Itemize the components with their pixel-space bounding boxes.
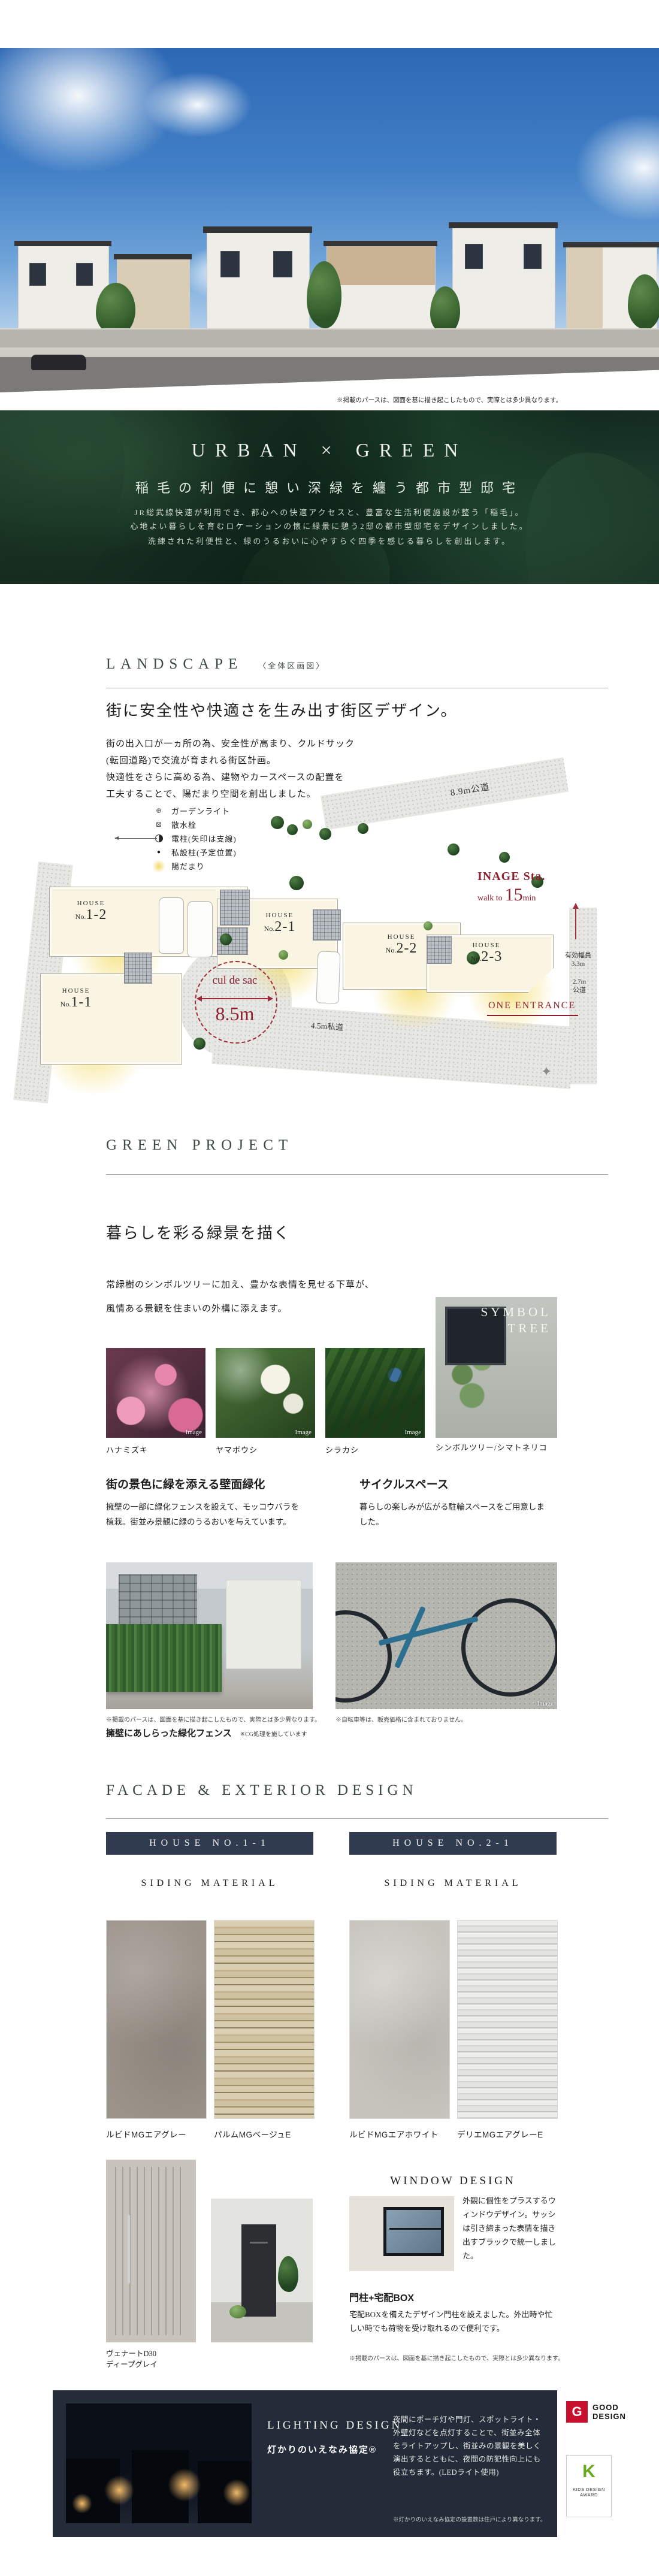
tree-icon [287, 824, 298, 835]
house-render [18, 246, 109, 334]
lighting-note: ※灯かりのいえなみ協定の設置数は住戸により異なります。 [393, 2515, 546, 2523]
car-outline [188, 901, 213, 957]
swatch-caption: パルムMGベージュE [214, 2128, 291, 2140]
urban-green-body-line: 洗練された利便性と、緑のうるおいに心やすらぐ四季を感じる暮らしを創出します。 [0, 535, 659, 546]
gate-post-photo [211, 2199, 313, 2342]
entrance-label: ONE ENTRANCE [488, 1000, 576, 1011]
wall-green-caption-note: ※CG処理を施しています [240, 1731, 307, 1738]
private-road-label: 4.5m私道 [310, 1018, 344, 1033]
house-render [452, 228, 555, 334]
cloud [575, 114, 659, 222]
urban-green-body-line: 心地よい暮らしを育むロケーションの懐に緑景に憩う2邸の都市型邸宅をデザインしまし… [0, 520, 659, 531]
landscape-header: LANDSCAPE 〈全体区画図〉 [106, 656, 325, 673]
urban-green-title: URBAN × GREEN [0, 439, 659, 461]
good-design-mark-icon: G [566, 2401, 588, 2423]
house-label-2-3: HOUSE No.2-3 [454, 942, 519, 965]
window-bar [389, 2228, 444, 2230]
landscape-title-note: 〈全体区画図〉 [258, 660, 325, 671]
roof-hatch [124, 953, 152, 984]
bicycle-wheel [461, 1598, 557, 1697]
image-tag: Image [295, 1429, 312, 1436]
culdesac-label: cul de sac [195, 974, 275, 987]
culdesac-width: 8.5m [195, 1003, 275, 1025]
bush-icon [303, 820, 312, 829]
road-width-note-2: 2.7m 公道 [561, 978, 597, 994]
window-photo [349, 2196, 454, 2271]
image-tag: Image [186, 1429, 202, 1436]
tree [628, 274, 659, 329]
culdesac-width-arrow [197, 998, 273, 999]
landscape-title: LANDSCAPE [106, 656, 243, 673]
divider [106, 1818, 608, 1819]
wall-green-note: ※掲載のパースは、図面を基に描き起こしたもので、実際とは多少異なります。 [106, 1715, 321, 1724]
building-silhouette [226, 1580, 301, 1669]
house-label-2-1: HOUSE No.2-1 [247, 912, 313, 935]
landscape-heading: 街に安全性や快適さを生み出す街区デザイン。 [106, 699, 457, 721]
garden-light-glow [72, 2493, 92, 2514]
good-design-award: G GOOD DESIGN [566, 2401, 626, 2423]
image-tag: Image [537, 1700, 554, 1707]
road-top-label: 8.9m公道 [449, 780, 491, 799]
landscape-body-line: (転回道路)で交流が育まれる街区計画。 [106, 752, 276, 769]
car-outline [316, 951, 340, 1003]
good-design-label: GOOD DESIGN [593, 2403, 626, 2421]
cycle-space-heading: サイクルスペース [359, 1476, 449, 1492]
plant-photo-hanamizuki: Image [106, 1348, 205, 1438]
plant-photo-shirakashi: Image [325, 1348, 425, 1438]
window-design-body: 外観に個性をプラスするウィンドウデザイン。サッシは引き締まった表情を描き出すブラ… [462, 2194, 557, 2263]
kids-design-award: K KIDS DESIGN AWARD [566, 2455, 612, 2517]
tree [96, 283, 135, 335]
plant-photo-yamaboushi: Image [216, 1348, 315, 1438]
siding-material-label: SIDING MATERIAL [349, 1878, 557, 1889]
cloud [144, 72, 252, 138]
siding-swatch [457, 1920, 558, 2119]
delivery-box-slot [250, 2242, 268, 2244]
wall-green-heading: 街の景色に緑を添える壁面緑化 [106, 1476, 265, 1492]
porch-light-glow [168, 2468, 201, 2502]
facade-note: ※掲載のパースは、図面を基に描き起こしたもので、実際とは多少異なります。 [349, 2353, 564, 2362]
bush-icon [279, 950, 288, 960]
bush-icon [424, 921, 433, 930]
bicycle-wheel [335, 1610, 392, 1703]
tree-icon [220, 933, 232, 945]
swatch-caption: デリエMGエアグレーE [457, 2128, 543, 2140]
public-road-right [569, 908, 597, 1084]
compass-icon: ✦ [541, 1064, 552, 1080]
lighting-body: 夜間にポーチ灯や門灯、スポットライト・外壁灯などを点灯することで、街並み全体をラ… [393, 2413, 544, 2479]
roof-hatch [220, 890, 250, 926]
flyer-page: ※掲載のパースは、図面を基に描き起こしたもので、実際とは多少異なります。 URB… [0, 0, 659, 2576]
kids-design-label: KIDS DESIGN AWARD [567, 2487, 611, 2498]
house-label-1-2: HOUSE No.1-2 [58, 900, 124, 923]
urban-green-subtitle: 稲毛の利便に憩い深緑を纏う都市型邸宅 [0, 477, 659, 497]
photo-caption: シンボルツリー/シマトネリコ [436, 1441, 548, 1453]
urban-green-body-line: JR総武線快速が利用でき、都心への快適アクセスと、豊富な生活利便施設が整う「稲毛… [0, 506, 659, 518]
porch-light-glow [104, 2475, 134, 2505]
tree-icon [289, 876, 304, 890]
photo-caption: ヤマボウシ [216, 1444, 258, 1455]
symbol-tree-photo: SYMBOL TREE [436, 1297, 557, 1438]
car [31, 355, 86, 370]
station-note: INAGE Sta. walk to 15min [477, 870, 601, 905]
tree-icon [358, 823, 368, 834]
divider [106, 1174, 608, 1175]
lighting-night-photo [66, 2403, 252, 2523]
lighting-title: LIGHTING DESIGN [267, 2419, 402, 2432]
window-design-title: WINDOW DESIGN [349, 2175, 557, 2188]
public-road-top: 8.9m公道 [321, 757, 569, 830]
roof-hatch [313, 909, 341, 941]
cycle-space-note: ※自転車等は、販売価格に含まれておりません。 [335, 1715, 467, 1724]
road [0, 357, 659, 392]
door-panel [115, 2167, 187, 2335]
site-plan: 8.9m公道 [40, 773, 608, 1084]
porch-light-glow [223, 2479, 250, 2507]
retaining-wall [0, 328, 659, 350]
swatch-caption: ルビドMGエアホワイト [349, 2128, 439, 2140]
siding-material-label: SIDING MATERIAL [106, 1878, 313, 1889]
gate-box-title: 門柱+宅配BOX [349, 2290, 414, 2304]
culdesac-circle [195, 961, 277, 1044]
photo-caption: ハナミズキ [106, 1444, 148, 1455]
swatch-caption: ルビドMGエアグレー [106, 2128, 186, 2140]
door-caption: ヴェナートD30 ディープグレイ [106, 2348, 158, 2370]
facade-column-header-1: HOUSE NO.1-1 [106, 1832, 313, 1855]
wall-green-photo [106, 1562, 313, 1709]
car-outline [159, 897, 184, 954]
tree-icon [194, 1038, 205, 1050]
siding-swatch [349, 1920, 450, 2119]
green-project-title: GREEN PROJECT [106, 1137, 293, 1154]
hero-image [0, 48, 659, 392]
image-tag: Image [405, 1429, 421, 1436]
green-project-body: 常緑樹のシンボルツリーに加え、豊かな表情を見せる下草が、 風情ある景観を住まいの… [106, 1273, 374, 1321]
siding-swatch [214, 1920, 315, 2119]
tree-icon [448, 843, 460, 855]
tree-icon [319, 828, 331, 840]
window-frame [383, 2207, 444, 2257]
house-render [207, 232, 310, 334]
tree-icon [499, 852, 510, 863]
door-handle [128, 2215, 130, 2284]
siding-swatch [106, 1920, 207, 2119]
tree [278, 2256, 298, 2292]
hero-caption: ※掲載のパースは、図面を基に描き起こしたもので、実際とは多少異なります。 [258, 395, 641, 404]
tree [307, 261, 341, 328]
cycle-space-body: 暮らしの楽しみが広がる駐輪スペースをご用意しました。 [359, 1499, 545, 1529]
green-project-heading: 暮らしを彩る緑景を描く [106, 1221, 291, 1243]
kids-design-mark-icon: K [567, 2462, 611, 2482]
road-width-note-1: 有効幅員 3.3m [554, 951, 602, 968]
landscape-body-line: 街の出入口が一ヵ所の為、安全性が高まり、クルドサック [106, 736, 355, 752]
house-label-1-1: HOUSE No.1-1 [43, 987, 109, 1011]
entrance-underline [487, 1015, 578, 1016]
green-fence [106, 1624, 222, 1692]
wall-green-caption-row: 擁壁にあしらった緑化フェンス ※CG処理を施しています [106, 1727, 307, 1739]
house-render [327, 246, 436, 334]
wall-green-body: 擁壁の一部に緑化フェンスを設えて、モッコウバラを植栽。街並み景観に緑のうるおいを… [106, 1499, 307, 1529]
gate-box-body: 宅配BOXを備えたデザイン門柱を設えました。外出時や忙しい時でも荷物を受け取れる… [349, 2308, 557, 2335]
facade-column-header-2: HOUSE NO.2-1 [349, 1832, 557, 1855]
entrance-door-photo [106, 2160, 196, 2342]
bush-icon [229, 2305, 246, 2318]
house-label-2-2: HOUSE No.2-2 [368, 933, 434, 957]
divider [106, 688, 608, 688]
leaf-decor [0, 410, 164, 584]
lighting-subtitle: 灯かりのいえなみ協定® [267, 2443, 377, 2456]
cycle-space-photo: Image [335, 1562, 557, 1709]
tree [430, 286, 460, 334]
station-direction-arrow [575, 908, 576, 939]
wall-green-caption: 擁壁にあしらった緑化フェンス [106, 1728, 232, 1739]
lighting-section: LIGHTING DESIGN 灯かりのいえなみ協定® 夜間にポーチ灯や門灯、ス… [53, 2390, 557, 2537]
symbol-tree-overlay: SYMBOL TREE [480, 1304, 551, 1337]
tree-icon [271, 816, 284, 829]
gate-post [241, 2224, 276, 2317]
photo-caption: シラカシ [325, 1444, 359, 1455]
urban-green-section: URBAN × GREEN 稲毛の利便に憩い深緑を纏う都市型邸宅 JR総武線快速… [0, 410, 659, 584]
facade-title: FACADE & EXTERIOR DESIGN [106, 1782, 418, 1799]
